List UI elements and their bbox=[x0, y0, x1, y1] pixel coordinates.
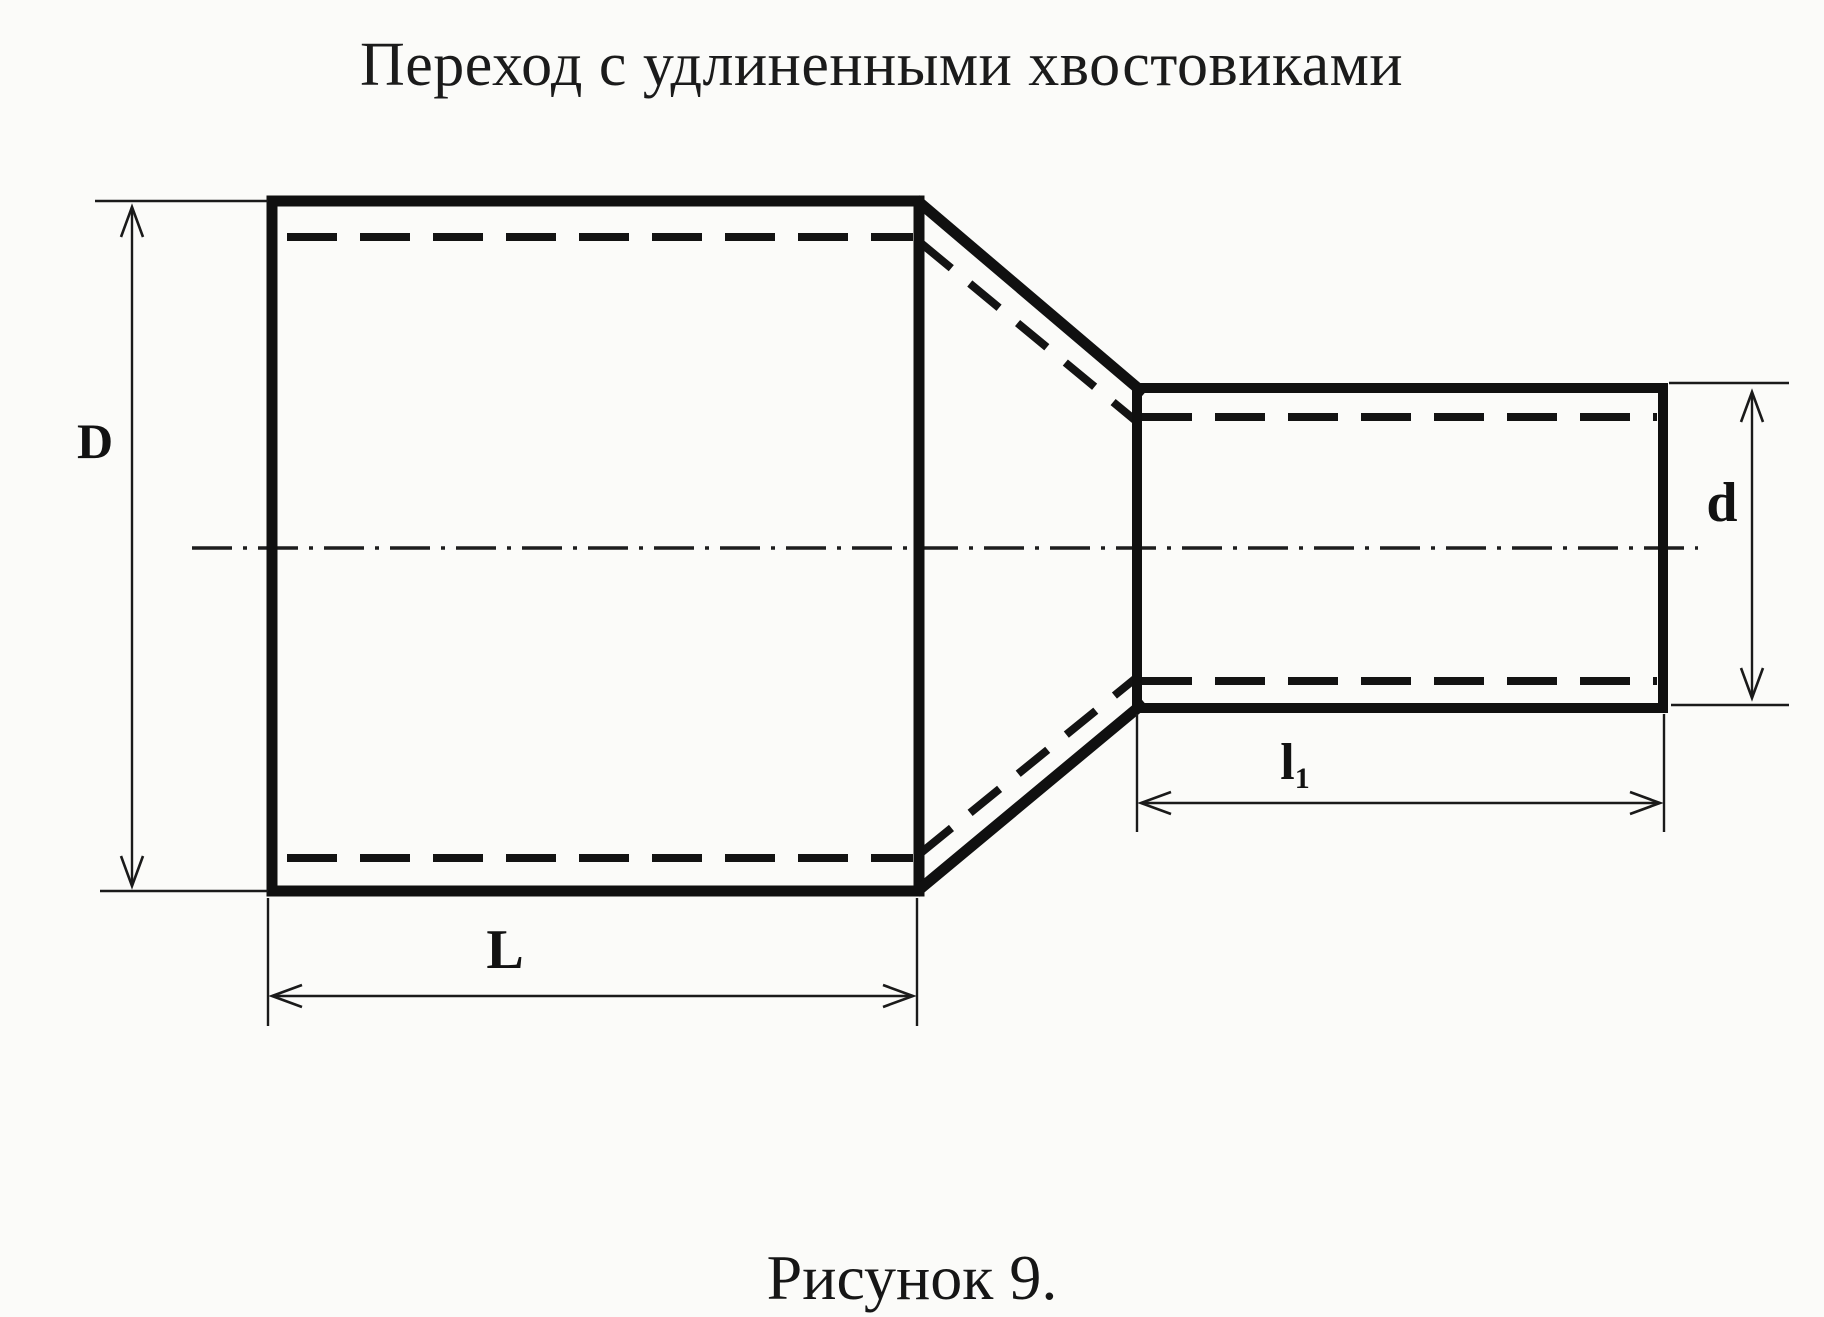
dimension-L: L bbox=[268, 898, 917, 1026]
dimension-label-D: D bbox=[77, 413, 113, 469]
scanned-drawing-page: Переход с удлиненными хвостовиками bbox=[0, 0, 1824, 1317]
figure-caption: Рисунок 9. bbox=[0, 1246, 1824, 1310]
cone-bottom-edge bbox=[920, 706, 1140, 889]
pipe-outline bbox=[272, 201, 1663, 891]
dimension-l1: l1 bbox=[1137, 714, 1664, 832]
cone-top-edge bbox=[920, 203, 1140, 390]
dimension-label-l1-subscript: 1 bbox=[1295, 762, 1310, 795]
large-pipe-body bbox=[272, 201, 919, 891]
dimension-label-l1: l1 bbox=[1280, 734, 1309, 795]
bore-cone-top bbox=[922, 244, 1136, 421]
dimension-label-d: d bbox=[1706, 472, 1737, 534]
dimension-d: d bbox=[1669, 383, 1789, 705]
dimension-label-L: L bbox=[486, 919, 523, 981]
dimension-D: D bbox=[77, 201, 268, 891]
bore-cone-bottom bbox=[922, 678, 1136, 852]
reducer-diagram: D L l1 d bbox=[0, 0, 1824, 1317]
dimension-label-l1-base: l bbox=[1280, 734, 1294, 791]
